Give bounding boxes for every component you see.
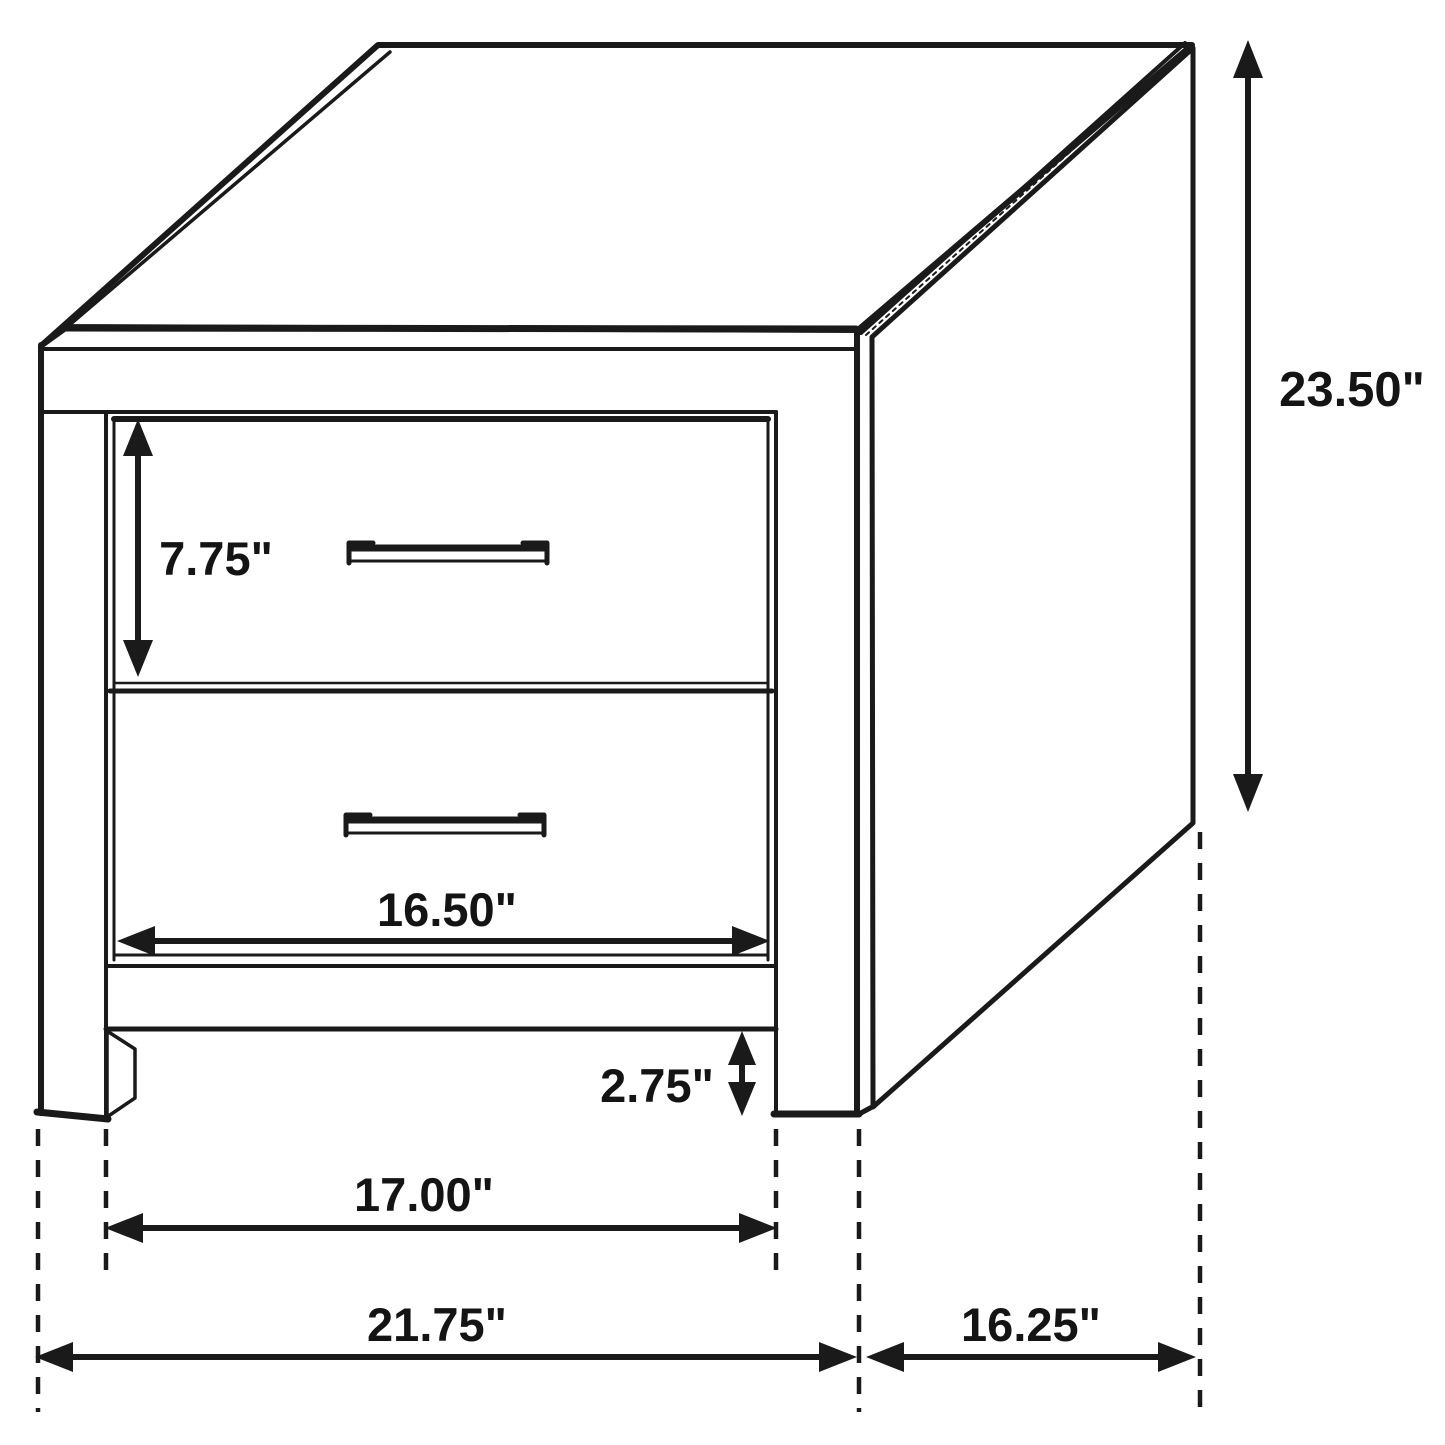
dimension-label-depth: 16.25" [961,1298,1101,1351]
dimension-label-overall-width: 21.75" [367,1298,507,1351]
left-leg-inner-side [107,1031,135,1117]
arrow-right-icon [739,1213,777,1243]
arrow-left-icon [866,1342,904,1372]
diagram-canvas: 7.75" 23.50" 16.50" 2.75" [0,0,1445,1445]
front-legs [37,1031,874,1119]
arrow-left-icon [105,1213,143,1243]
arrow-down-icon [1233,774,1263,812]
dimension-label-inner-width: 17.00" [354,1168,494,1221]
arrow-up-icon [123,419,153,456]
arrow-down-icon [728,1082,756,1116]
left-leg-foot [37,1112,108,1119]
right-leg-corner-edge [859,1106,874,1114]
arrow-right-icon [819,1342,857,1372]
arrow-right-icon [1158,1342,1196,1372]
dimension-inner-width: 17.00" [105,1129,777,1272]
dimension-overall-height: 23.50" [1233,40,1425,812]
upper-drawer-handle-icon [349,543,547,563]
dimension-drawer-height: 7.75" [123,419,273,677]
dimension-leg-height: 2.75" [600,1031,756,1116]
dimension-label-leg-height: 2.75" [600,1059,714,1112]
face-frame [41,330,857,1118]
dimension-label-drawer-width: 16.50" [377,883,517,936]
arrow-right-icon [732,926,770,956]
lower-drawer-handle-icon [346,815,544,835]
dimension-label-overall-height: 23.50" [1279,363,1425,417]
nightstand-dimension-drawing: 7.75" 23.50" 16.50" 2.75" [0,0,1445,1445]
dimension-drawer-width: 16.50" [117,883,770,956]
arrow-down-icon [123,640,153,677]
dimension-label-drawer-height: 7.75" [159,532,273,585]
arrow-left-icon [117,926,155,956]
arrow-up-icon [728,1031,756,1065]
arrow-left-icon [35,1342,73,1372]
arrow-up-icon [1233,40,1263,78]
top-front-edge [62,328,856,329]
